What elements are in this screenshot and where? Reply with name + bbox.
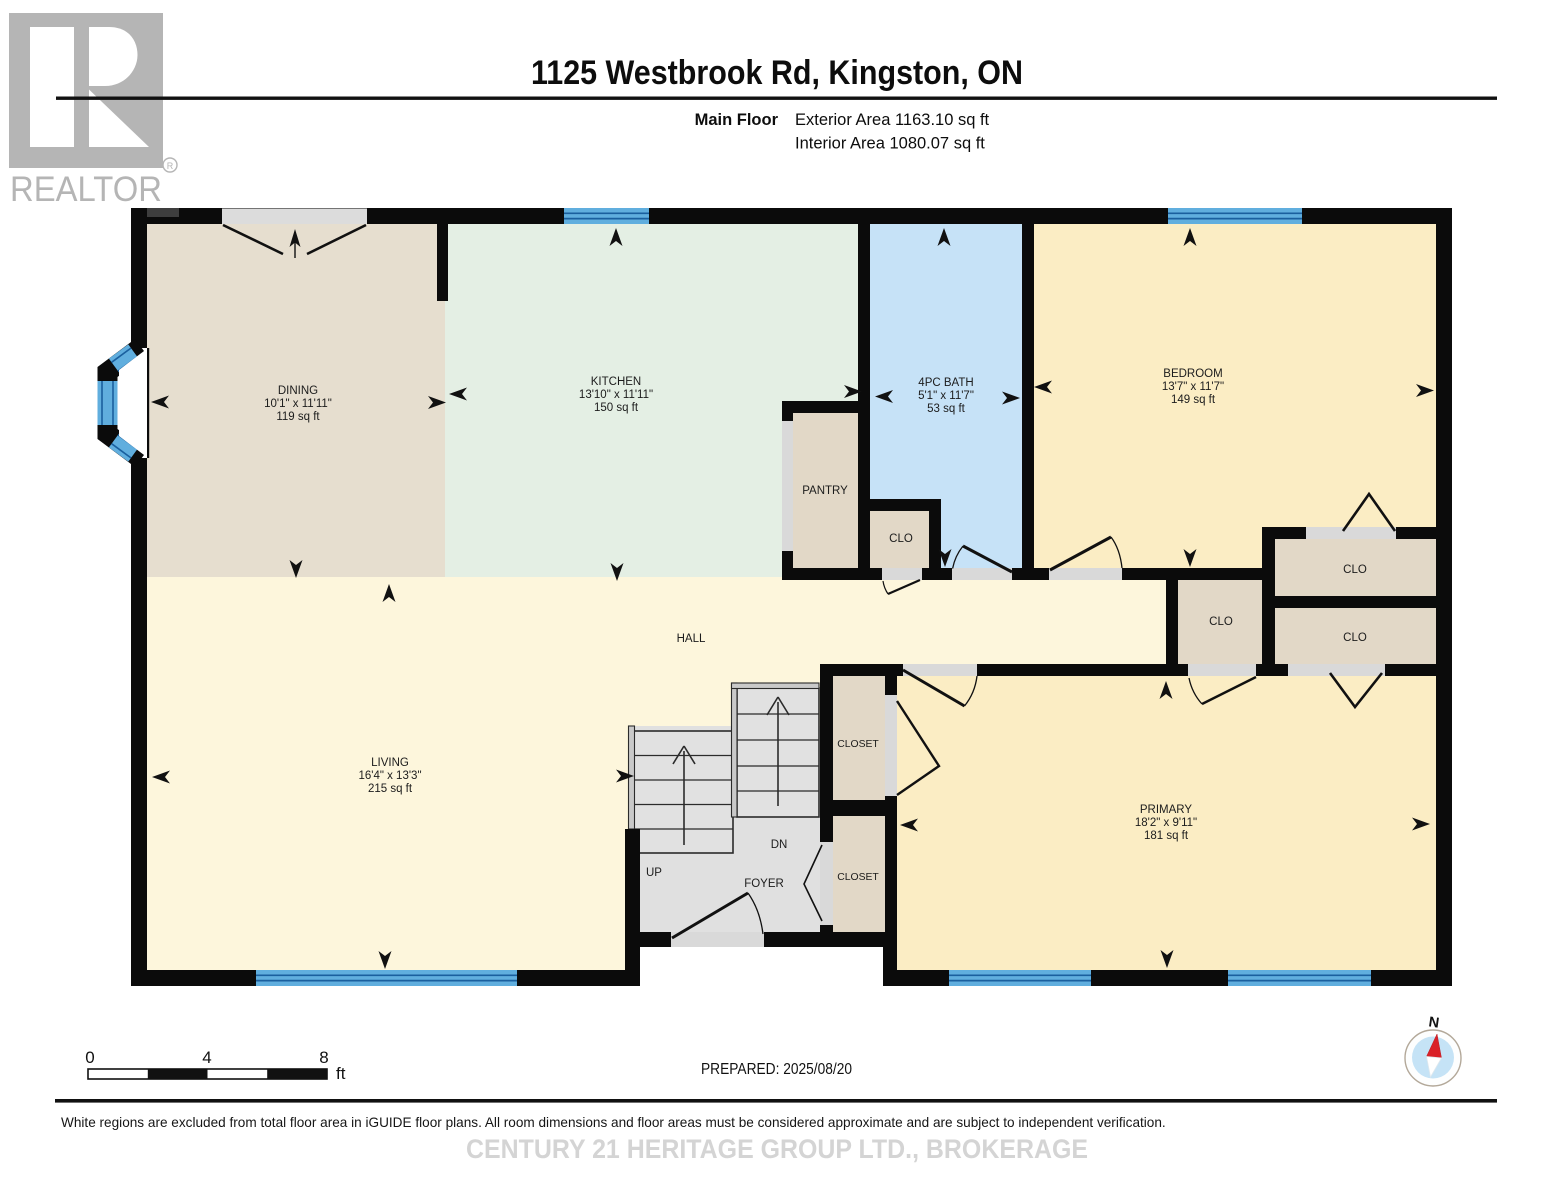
svg-text:181 sq ft: 181 sq ft xyxy=(1144,830,1189,842)
svg-text:0: 0 xyxy=(85,1048,94,1067)
svg-text:13'7" x 11'7": 13'7" x 11'7" xyxy=(1162,381,1224,393)
svg-text:PANTRY: PANTRY xyxy=(802,485,848,497)
svg-text:10'1" x 11'11": 10'1" x 11'11" xyxy=(264,398,332,410)
svg-text:53 sq ft: 53 sq ft xyxy=(927,403,966,415)
svg-text:16'4" x 13'3": 16'4" x 13'3" xyxy=(358,770,421,782)
svg-text:215 sq ft: 215 sq ft xyxy=(368,783,413,795)
svg-text:PREPARED: 2025/08/20: PREPARED: 2025/08/20 xyxy=(701,1061,852,1078)
svg-text:Interior Area 1080.07 sq ft: Interior Area 1080.07 sq ft xyxy=(795,135,985,153)
svg-text:PRIMARY: PRIMARY xyxy=(1140,804,1193,816)
svg-text:4: 4 xyxy=(202,1048,211,1067)
svg-text:HALL: HALL xyxy=(677,633,706,645)
svg-text:8: 8 xyxy=(319,1048,328,1067)
svg-text:CLOSET: CLOSET xyxy=(837,739,879,750)
svg-text:CLO: CLO xyxy=(1209,616,1233,628)
svg-text:REALTOR: REALTOR xyxy=(10,170,162,209)
svg-text:13'10" x 11'11": 13'10" x 11'11" xyxy=(579,389,653,401)
svg-text:N: N xyxy=(1428,1014,1441,1031)
svg-text:1125 Westbrook Rd, Kingston, O: 1125 Westbrook Rd, Kingston, ON xyxy=(531,54,1023,92)
svg-text:R: R xyxy=(167,161,174,171)
svg-text:CLO: CLO xyxy=(889,533,913,545)
svg-text:CLO: CLO xyxy=(1343,632,1367,644)
svg-text:White regions are excluded fro: White regions are excluded from total fl… xyxy=(61,1115,1166,1130)
svg-text:149 sq ft: 149 sq ft xyxy=(1171,394,1216,406)
svg-text:4PC BATH: 4PC BATH xyxy=(918,377,973,389)
svg-text:LIVING: LIVING xyxy=(371,757,409,769)
svg-text:ft: ft xyxy=(336,1064,346,1083)
svg-text:DINING: DINING xyxy=(278,385,318,397)
svg-text:CENTURY 21 HERITAGE GROUP LTD.: CENTURY 21 HERITAGE GROUP LTD., BROKERAG… xyxy=(466,1134,1088,1164)
svg-text:18'2" x 9'11": 18'2" x 9'11" xyxy=(1135,817,1197,829)
svg-text:FOYER: FOYER xyxy=(744,878,784,890)
svg-text:UP: UP xyxy=(646,867,662,879)
svg-text:DN: DN xyxy=(771,839,788,851)
svg-text:KITCHEN: KITCHEN xyxy=(591,376,641,388)
svg-text:119 sq ft: 119 sq ft xyxy=(276,411,320,423)
svg-text:BEDROOM: BEDROOM xyxy=(1163,368,1222,380)
svg-text:150 sq ft: 150 sq ft xyxy=(594,402,639,414)
svg-text:Main Floor: Main Floor xyxy=(695,111,779,129)
svg-text:CLOSET: CLOSET xyxy=(837,872,879,883)
svg-text:CLO: CLO xyxy=(1343,564,1367,576)
svg-text:5'1" x 11'7": 5'1" x 11'7" xyxy=(918,390,974,402)
svg-text:Exterior Area 1163.10 sq ft: Exterior Area 1163.10 sq ft xyxy=(795,111,990,129)
